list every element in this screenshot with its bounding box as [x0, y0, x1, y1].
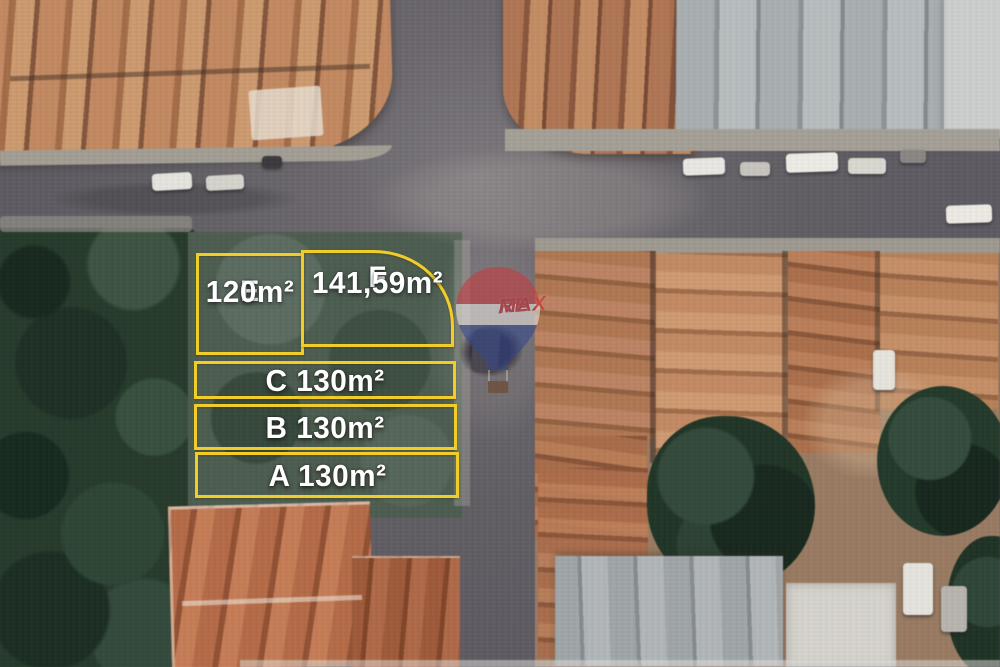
plot-label-c: C 130m²: [265, 365, 384, 396]
plot-outline-a: A 130m²: [195, 452, 459, 498]
remax-watermark: RE/MAX: [448, 264, 548, 398]
remax-balloon-icon: [448, 264, 548, 398]
plot-label-a: A 130m²: [268, 460, 386, 491]
plot-area-e: 120m²: [206, 276, 294, 307]
plot-label-b: B 130m²: [266, 412, 385, 443]
plot-outline-c: C 130m²: [194, 361, 456, 399]
satellite-image: E 120m² F 141,59m² C 130m² B 130m² A 130…: [0, 0, 1000, 667]
plot-outline-b: B 130m²: [194, 404, 457, 450]
remax-wordmark-max: MAX: [498, 293, 547, 318]
plot-area-f: 141,59m²: [312, 267, 443, 298]
